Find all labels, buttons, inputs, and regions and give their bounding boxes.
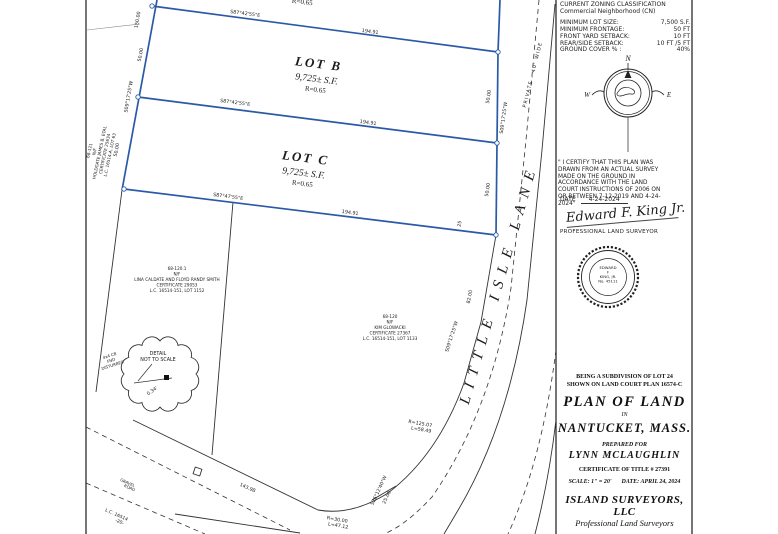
gravel-road-labels: GRAVEL ROAD L.C. 16514 -20- (104, 477, 136, 527)
svg-text:R=0.65: R=0.65 (304, 85, 326, 96)
scale-and-date: SCALE: 1" = 20' DATE: APRIL 24, 2024 (557, 479, 692, 485)
svg-text:R=0.65: R=0.65 (291, 179, 313, 190)
detail-title: DETAIL (150, 351, 167, 357)
zoning-block: CURRENT ZONING CLASSIFICATION Commercial… (560, 2, 690, 54)
date-value: 4-24-2024 (581, 196, 628, 204)
title-block: BEING A SUBDIVISION OF LOT 24 SHOWN ON L… (557, 374, 692, 528)
dim-left-150: 150.00 (134, 11, 143, 29)
svg-text:68-120: 68-120 (383, 314, 398, 319)
compass-e: E (666, 91, 672, 99)
lot-c-label: LOT C 9,725± S.F. R=0.65 (277, 147, 329, 191)
plan-sheet: DETAIL NOT TO SCALE 0.34' 4x4 CB FND DIS… (0, 0, 778, 534)
dim-left-bearing: S09°17'25"W (123, 80, 135, 113)
plan-title: PLAN OF LAND (557, 394, 692, 411)
dim-right-82: 82.00 (466, 289, 475, 304)
dim-tick-length: 25.00 (381, 490, 392, 505)
lot-b-label: LOT B 9,725± S.F. R=0.65 (290, 53, 342, 97)
plan-place: NANTUCKET, MASS. (557, 421, 692, 436)
svg-text:L.C. 16514-151, LOT 1152: L.C. 16514-151, LOT 1152 (150, 288, 205, 293)
dim-right-bearing-a: S09°17'25"W (499, 101, 509, 134)
dim-right-25: 25 (457, 220, 464, 227)
north-arrow-icon (625, 70, 632, 78)
surveyor-firm: ISLAND SURVEYORS, LLC (557, 494, 692, 518)
scale-value: SCALE: 1" = 20' (569, 479, 612, 485)
svg-text:LOT C: LOT C (280, 147, 330, 168)
detail-subtitle: NOT TO SCALE (140, 357, 175, 363)
tie-line (87, 24, 140, 30)
dim-right-50a: 50.00 (485, 90, 493, 104)
signer-title: PROFESSIONAL LAND SURVEYOR (560, 229, 658, 235)
lot-boundary-lines (122, 0, 500, 235)
compass-rose: N W E (584, 54, 672, 152)
svg-text:CERTIFICATE 29053: CERTIFICATE 29053 (157, 283, 198, 288)
surveyor-firm-subtitle: Professional Land Surveyors (557, 518, 692, 528)
svg-text:N/F: N/F (387, 320, 395, 325)
dim-right-50b: 50.00 (484, 183, 492, 197)
svg-text:L.C. 16514-151, LOT 1133: L.C. 16514-151, LOT 1133 (363, 336, 418, 341)
zoning-subtitle: Commercial Neighborhood (CN) (560, 9, 690, 16)
neighbor-lina: 68-120.1 N/F LINA CALDATE AND FLOYD RAND… (134, 266, 219, 293)
svg-text:KIM GLOWACKI: KIM GLOWACKI (374, 325, 405, 330)
road-width-note: PRIVATE - 40' WIDE (522, 41, 544, 108)
svg-text:LOT B: LOT B (293, 53, 343, 74)
monument-note: 4x4 CB FND DISTURBED (98, 350, 125, 371)
dim-left-50a: 50.00 (137, 48, 145, 63)
client-name: LYNN MCLAUGHLIN (557, 450, 692, 461)
bound-square-open (193, 467, 202, 476)
bound-square-filled (164, 375, 169, 380)
certificate-of-title: CERTIFICATE OF TITLE # 27391 (557, 467, 692, 473)
compass-n: N (624, 54, 631, 63)
svg-text:68-120.1: 68-120.1 (168, 266, 187, 271)
svg-text:N/F: N/F (174, 272, 182, 277)
nantucket-island-icon (617, 87, 635, 96)
zoning-row: GROUND COVER % :40% (560, 47, 690, 54)
lot-a-partial-ratio: R=0.65 (291, 0, 313, 7)
dim-mid-bearing: S87°42'55"E (220, 98, 251, 108)
detail-offset-dim: 0.34' (146, 385, 159, 397)
svg-text:CERTIFICATE 27367: CERTIFICATE 27367 (370, 331, 411, 336)
surveyor-seal: EDWARD F KING, JR. No. 45111 (578, 247, 638, 307)
date-label: DATE (560, 196, 576, 204)
plan-title-in: IN (557, 412, 692, 418)
subdivision-note-1: BEING A SUBDIVISION OF LOT 24 (557, 374, 692, 382)
certification-date: DATE 4-24-2024 (560, 196, 628, 204)
subdivision-note-2: SHOWN ON LAND COURT PLAN 16574-C (557, 382, 692, 390)
date-of-plan: DATE: APRIL 24, 2024 (622, 479, 681, 485)
neighbor-kim: 68-120 N/F KIM GLOWACKI CERTIFICATE 2736… (363, 314, 418, 341)
svg-text:LINA CALDATE AND FLOYD RANDY S: LINA CALDATE AND FLOYD RANDY SMITH (134, 277, 219, 282)
dim-right-bearing-b: S09°17'25"W (444, 320, 460, 353)
svg-text:No. 45111: No. 45111 (598, 279, 618, 284)
dim-gravel-length: 143.98 (239, 482, 257, 494)
compass-w: W (584, 91, 591, 99)
prepared-for-label: PREPARED FOR (557, 442, 692, 448)
detail-cloud: DETAIL NOT TO SCALE 0.34' (121, 337, 198, 411)
lot-corner-monuments (122, 4, 500, 237)
neighbor-holdgate: 68-121 N/F HOLDGATE JAMES B. ETAL CERTIF… (81, 123, 118, 182)
